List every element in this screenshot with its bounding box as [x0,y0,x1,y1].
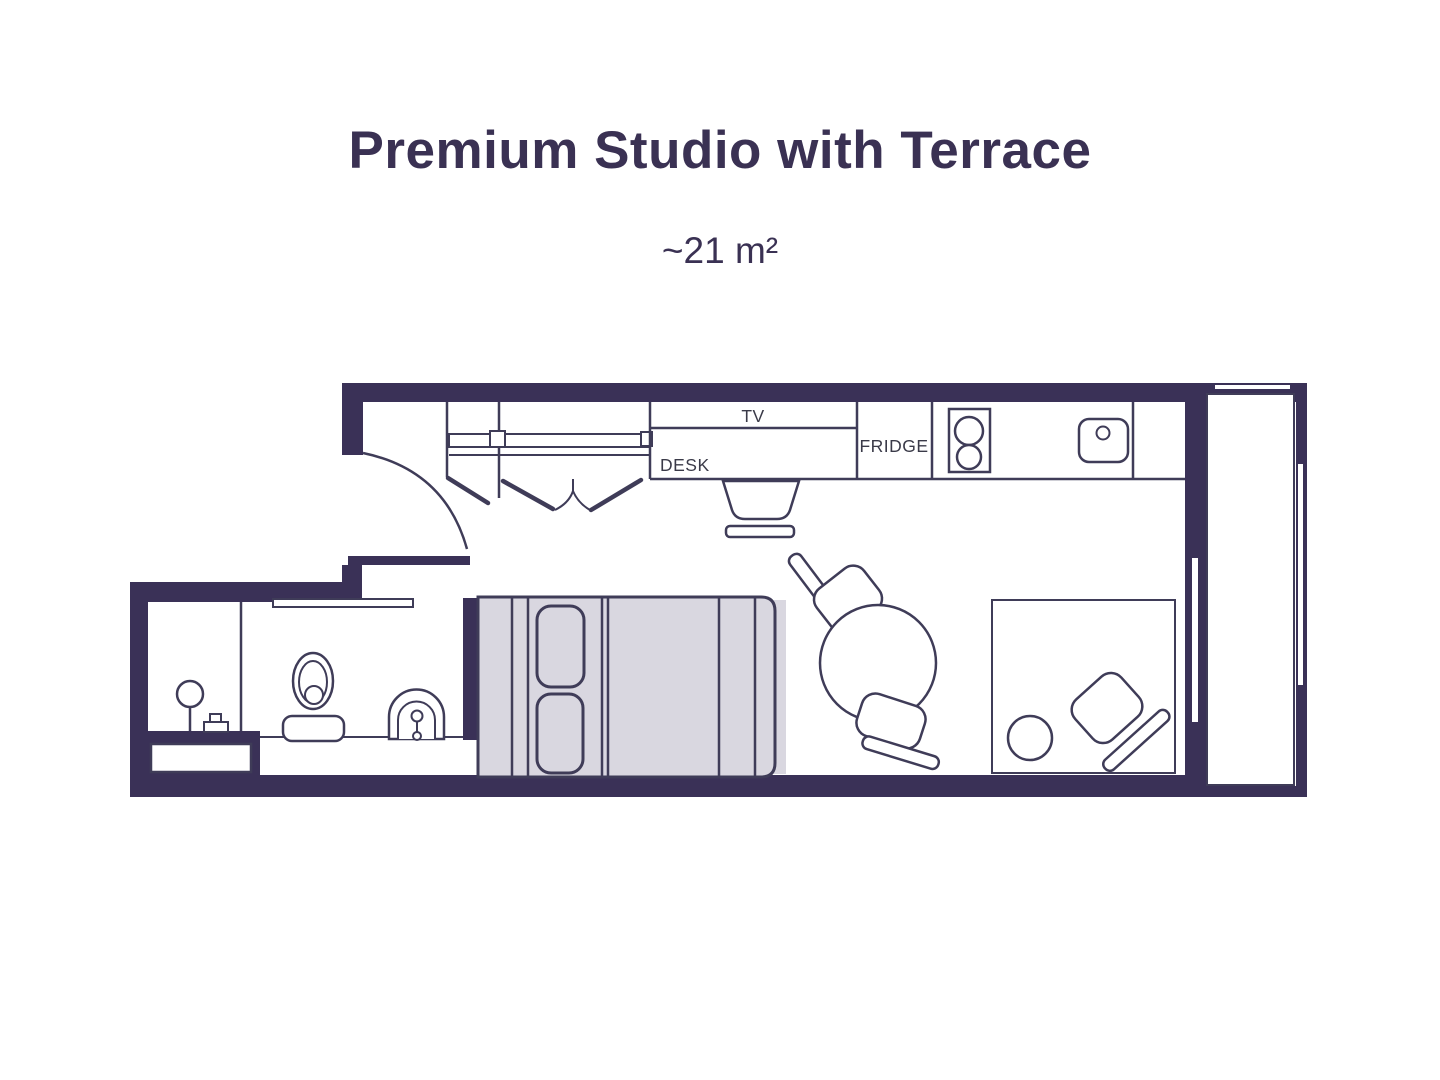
wardrobe [447,402,652,510]
toilet-base [283,716,344,741]
wall-bathroom-right [463,598,478,740]
bathroom-step [151,744,251,772]
floorplan: TV DESK FRIDGE [0,0,1440,1080]
bathroom-sliding-door [273,599,413,607]
desk-chair [723,481,799,519]
lounge-corner [992,600,1175,773]
label-desk: DESK [660,455,710,475]
shower-control [204,722,228,732]
wall-top [342,383,1307,402]
desk-chair-bar [726,526,794,537]
wall-entry-bar [348,556,470,565]
bed [478,597,786,777]
window-room-terrace [1192,558,1198,722]
bed-frame [478,597,775,777]
terrace-floor [1207,394,1294,785]
toilet-flush-button [305,686,323,704]
entry-door-arc [363,453,467,549]
label-fridge: FRIDGE [859,436,928,456]
kitchen-counter: TV DESK FRIDGE [650,402,1185,537]
folding-door-panel-2 [503,481,553,509]
wall-terrace-bottom [1206,786,1307,797]
wall-entry-door-pillar [342,383,363,455]
folding-door-panel-3 [591,480,641,510]
pillow-top [537,606,584,687]
hanging-rail [449,434,650,447]
dining-set [787,551,941,770]
window-terrace-outer [1298,464,1303,685]
label-tv: TV [741,406,764,426]
shower-head [177,681,203,707]
kitchen-sink-drain [1097,427,1110,440]
rail-bracket-left [490,431,505,447]
folding-door-panel-1 [448,478,488,503]
window-terrace-top [1215,385,1290,389]
side-table [1008,716,1052,760]
sink-tap-base [413,732,421,740]
sink-tap [412,711,423,722]
kitchen-sink [1079,419,1128,462]
bathroom [151,599,463,772]
shower-control-knob [210,714,221,722]
folding-door-center [555,479,590,510]
stove-burner-large [955,417,983,445]
stove-burner-small [957,445,981,469]
pillow-bottom [537,694,583,773]
